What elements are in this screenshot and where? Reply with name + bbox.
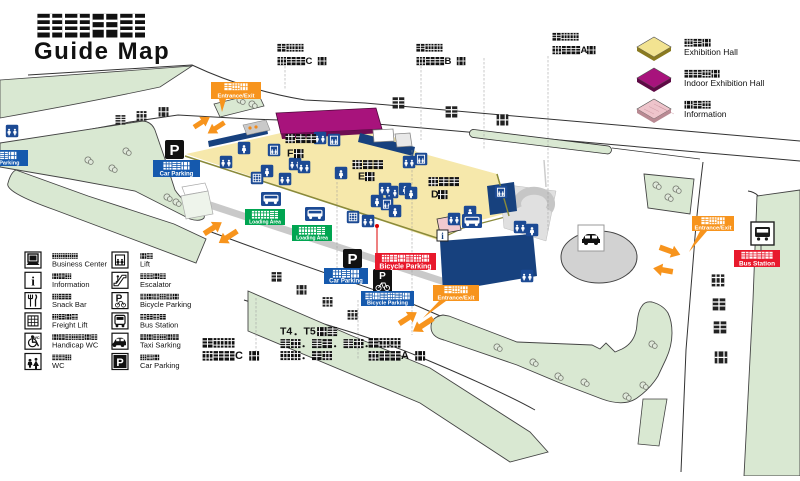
svg-text:Guide Map: Guide Map: [34, 38, 170, 65]
svg-text:A: A: [401, 350, 409, 362]
svg-text:Loading Area: Loading Area: [296, 236, 328, 242]
svg-text:Lift: Lift: [140, 260, 151, 269]
svg-text:Bicycle Parking: Bicycle Parking: [140, 300, 191, 309]
svg-text:Car Parking: Car Parking: [140, 361, 180, 370]
svg-text:P: P: [379, 271, 386, 282]
svg-text:Taxi Sarking: Taxi Sarking: [140, 341, 181, 350]
svg-text:Snack Bar: Snack Bar: [52, 300, 87, 309]
svg-text:T4: T4: [280, 326, 292, 338]
svg-text:Bicycle Parking: Bicycle Parking: [367, 301, 408, 307]
svg-text:Business Center: Business Center: [52, 260, 108, 269]
svg-text:Entrance/Exit: Entrance/Exit: [437, 296, 474, 302]
svg-text:C: C: [306, 56, 313, 67]
svg-text:Information: Information: [52, 280, 90, 289]
svg-text:Exhibition Hall: Exhibition Hall: [684, 47, 738, 57]
svg-text:Bicycle Parking: Bicycle Parking: [379, 264, 431, 271]
svg-text:D: D: [431, 189, 439, 201]
svg-text:Car Parking: Car Parking: [0, 161, 19, 167]
svg-text:P: P: [169, 142, 179, 159]
svg-text:Freight Lift: Freight Lift: [52, 320, 88, 329]
svg-text:Entrance/Exit: Entrance/Exit: [217, 94, 254, 100]
svg-text:Information: Information: [684, 109, 727, 119]
svg-text:Bus Station: Bus Station: [140, 320, 178, 329]
svg-text:Handicap WC: Handicap WC: [52, 341, 99, 350]
svg-text:T5: T5: [304, 326, 316, 338]
svg-text:Bus Station: Bus Station: [739, 261, 775, 268]
svg-text:F: F: [287, 148, 294, 160]
svg-text:B: B: [445, 56, 452, 67]
svg-text:WC: WC: [52, 361, 65, 370]
svg-text:i: i: [31, 273, 35, 288]
svg-text:Entrance/Exit: Entrance/Exit: [694, 226, 731, 232]
svg-text:E: E: [358, 171, 365, 183]
svg-text:Car Parking: Car Parking: [329, 279, 363, 285]
svg-text:Loading Area: Loading Area: [249, 220, 281, 226]
svg-text:P: P: [116, 357, 123, 369]
svg-text:WC: WC: [33, 335, 40, 340]
svg-text:Escalator: Escalator: [140, 280, 172, 289]
svg-text:P: P: [347, 251, 357, 268]
svg-text:Car Parking: Car Parking: [160, 172, 194, 178]
svg-text:C: C: [235, 350, 243, 362]
svg-text:A: A: [581, 45, 588, 56]
svg-text:Indoor Exhibition Hall: Indoor Exhibition Hall: [684, 78, 764, 88]
